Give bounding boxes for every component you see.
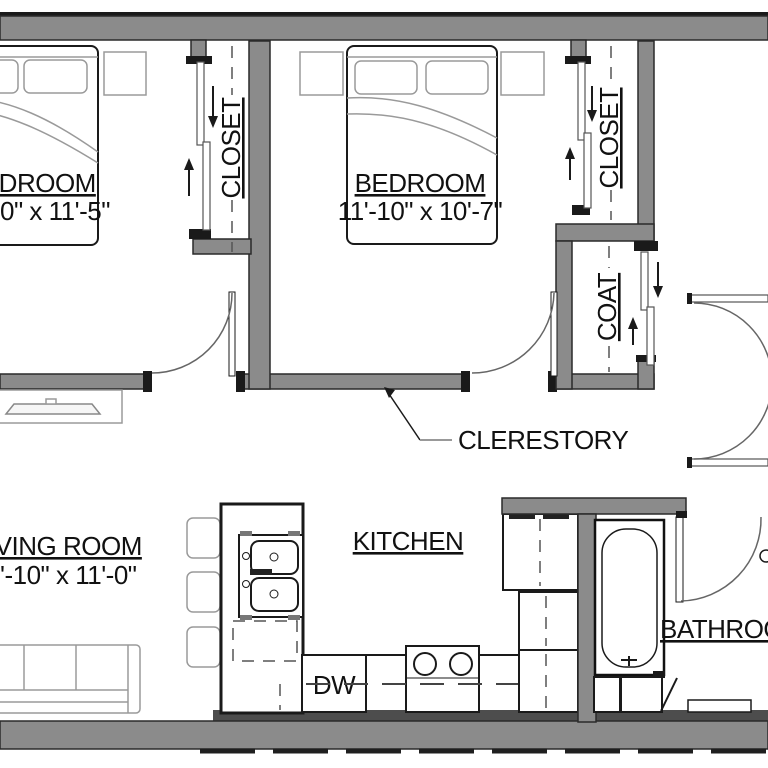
angled-door-line — [661, 678, 677, 711]
living-room-dims: '-10" x 11'-0" — [0, 560, 137, 590]
closet1-right-wall — [249, 41, 270, 389]
leader-line — [387, 391, 420, 440]
base-cabinet — [519, 650, 578, 712]
bathroom-label: BATHROOM — [660, 614, 768, 644]
bedroom2-door-leaf — [551, 292, 557, 376]
coat-bypass-door — [647, 307, 654, 365]
bar-stool — [187, 627, 220, 667]
door-jamb — [461, 371, 470, 392]
pillow — [355, 61, 417, 94]
bottom-wall — [0, 721, 768, 749]
sofa — [0, 645, 140, 713]
nightstand — [104, 52, 146, 95]
door-jamb — [143, 371, 152, 392]
closet1-top-jamb — [191, 40, 206, 57]
closet2-bottom-wall — [556, 224, 654, 241]
closet1-bypass-door — [197, 62, 204, 145]
bedroom1-dims: 0" x 11'-5" — [0, 196, 110, 226]
wall-nub — [653, 671, 665, 678]
door-jamb — [236, 371, 245, 392]
bathroom-door-swing — [681, 517, 761, 601]
bedroom2-right-wall — [556, 241, 572, 389]
bar-stool — [187, 572, 220, 612]
arrowhead — [653, 286, 663, 298]
closet2-bypass-door — [584, 133, 591, 208]
top-wall — [0, 16, 768, 40]
faucet-spout — [250, 569, 272, 575]
bath-cabinet — [621, 677, 662, 712]
bathtub — [595, 520, 664, 675]
bathroom-top-wall — [502, 498, 686, 514]
double-sink — [239, 531, 303, 620]
closet1-bypass-door — [203, 142, 210, 230]
counter-tick — [288, 531, 300, 536]
bath-cabinet — [594, 677, 620, 712]
pantry-cabinet — [519, 592, 578, 650]
coat-top-cap — [634, 241, 658, 251]
bathroom-door-leaf — [676, 517, 683, 602]
pillow — [0, 60, 18, 93]
counter-tick — [240, 531, 252, 536]
entry-double-door-leaf — [690, 459, 768, 466]
arrowhead — [565, 147, 575, 159]
bedroom2-door-swing — [472, 293, 554, 373]
coat-bypass-door — [641, 252, 648, 310]
range — [406, 646, 479, 712]
bedroom2-label: BEDROOM — [355, 168, 486, 198]
closet2-bypass-door — [578, 62, 585, 140]
coat-label: COAT — [592, 272, 622, 341]
sofa-outline — [0, 645, 140, 713]
tv-mount — [46, 399, 56, 404]
clerestory-wall-left — [0, 374, 150, 389]
bar-stool — [187, 518, 220, 558]
closet2-right-wall — [638, 41, 654, 241]
closet2-label: CLOSET — [594, 87, 624, 189]
bedroom1-door-swing — [152, 293, 232, 373]
bedroom1-label: BEDROOM — [0, 168, 96, 198]
door-knob — [760, 550, 768, 562]
door-hinge — [687, 457, 692, 468]
counter-tick — [240, 615, 252, 620]
floor-plan: CLOSET CLOSET COAT BEDROOM 0" x 11'-5" — [0, 0, 768, 768]
nightstand — [300, 52, 343, 95]
refrigerator — [503, 514, 578, 590]
living-room-label: LIVING ROOM — [0, 531, 142, 561]
door-hinge — [687, 293, 692, 304]
closet1-label: CLOSET — [216, 97, 246, 199]
sink-outline — [239, 535, 303, 617]
closet1-bottom-wall — [193, 239, 251, 254]
kitchen-label: KITCHEN — [353, 526, 464, 556]
entry-door-swing — [694, 303, 768, 381]
closet2-top-jamb — [571, 40, 586, 57]
nightstand — [501, 52, 544, 95]
tub-surround — [595, 520, 664, 675]
arrowhead — [184, 158, 194, 170]
bath-bench — [688, 700, 751, 712]
entry-double-door-leaf — [690, 295, 768, 302]
door-hinge — [676, 511, 687, 518]
clerestory-wall-mid — [238, 374, 468, 389]
pillow — [24, 60, 87, 93]
pillow — [426, 61, 488, 94]
arrowhead — [628, 317, 638, 329]
counter-tick — [288, 615, 300, 620]
tv — [6, 404, 100, 414]
entry-door-swing — [694, 381, 768, 459]
bedroom1-door-leaf — [229, 292, 235, 376]
bedroom2-dims: 11'-10" x 10'-7" — [338, 196, 503, 226]
clerestory-label: CLERESTORY — [458, 425, 628, 455]
